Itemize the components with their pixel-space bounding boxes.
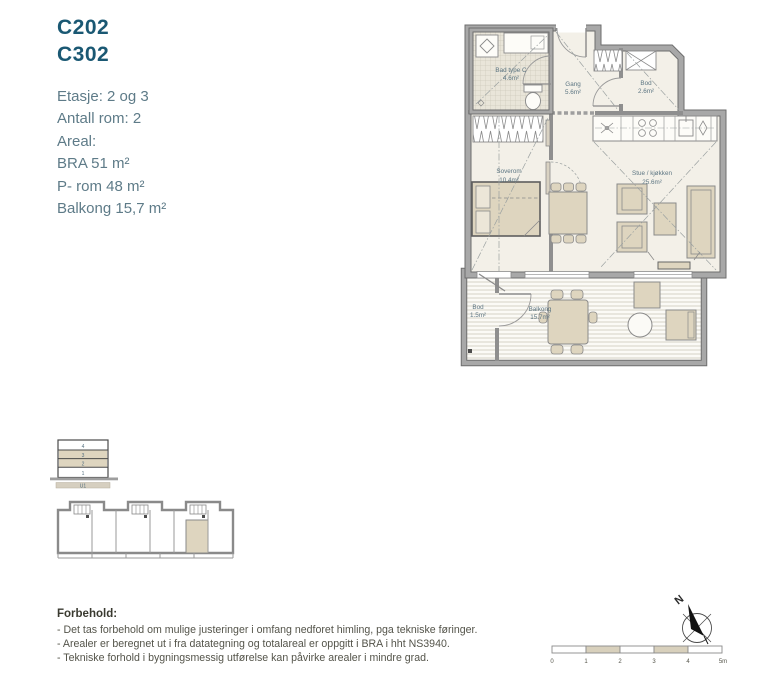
room-label-soverom: Soverom: [496, 168, 521, 175]
sofa: [687, 186, 715, 258]
room-label-bod: Bod: [640, 80, 652, 87]
disclaimer-line: - Arealer er beregnet ut i fra datategni…: [57, 637, 477, 651]
room-label-bathroom: Bad type C: [495, 67, 527, 74]
svg-text:4.6m²: 4.6m²: [503, 75, 519, 82]
detail-etasje: Etasje: 2 og 3: [57, 86, 166, 108]
bedroom-door-leaf: [546, 120, 550, 146]
balcony-drain: [468, 349, 472, 353]
disclaimer: Forbehold: - Det tas forbehold om mulige…: [57, 608, 477, 665]
svg-text:10.4m²: 10.4m²: [499, 177, 519, 184]
room-label-balcony-bod: Bod: [472, 304, 484, 311]
floorplan-page: C202 C302 Etasje: 2 og 3 Antall rom: 2 A…: [0, 0, 768, 679]
svg-text:1.5m²: 1.5m²: [470, 312, 486, 319]
scale-tick: 0: [550, 659, 554, 665]
floor-label-3: 3: [82, 453, 85, 459]
svg-text:2.6m²: 2.6m²: [638, 88, 654, 95]
key-plan: [50, 492, 245, 567]
pillow: [476, 211, 490, 233]
detail-balkong: Balkong 15,7 m²: [57, 198, 166, 220]
floor-label-4: 4: [82, 444, 85, 450]
apartment-details: Etasje: 2 og 3 Antall rom: 2 Areal: BRA …: [57, 86, 166, 220]
highlighted-unit: [186, 520, 208, 553]
room-label-balkong: Balkong: [529, 306, 552, 313]
unit-codes: C202 C302: [57, 14, 109, 68]
disclaimer-heading: Forbehold:: [57, 608, 477, 620]
bed: [472, 182, 540, 236]
bod-unit-box: [626, 51, 656, 70]
unit-code-secondary: C302: [57, 41, 109, 68]
svg-text:25.6m²: 25.6m²: [642, 179, 662, 186]
detail-antall-rom: Antall rom: 2: [57, 108, 166, 130]
pillow: [476, 186, 490, 208]
svg-text:5.6m²: 5.6m²: [565, 89, 581, 96]
basement-label: U1: [80, 483, 87, 489]
dining-table: [549, 183, 587, 243]
coffee-table: [654, 203, 676, 235]
disclaimer-line: - Det tas forbehold om mulige justeringe…: [57, 623, 477, 637]
outdoor-round-table: [628, 313, 652, 337]
svg-text:15.7m²: 15.7m²: [530, 314, 550, 321]
room-label-stue: Stue / kjøkken: [632, 170, 672, 177]
armchair: [617, 222, 647, 252]
washing-machine: [476, 35, 498, 57]
compass-needle: [688, 604, 704, 636]
scale-tick: 4: [686, 659, 690, 665]
scale-tick: 2: [618, 659, 622, 665]
building-section-diagram: 4 3 2 1 U1: [48, 430, 123, 492]
armchair: [617, 184, 647, 214]
scale-tick: 3: [652, 659, 656, 665]
scale-tick: 5m: [719, 659, 727, 665]
disclaimer-line: - Tekniske forhold i bygningsmessig utfø…: [57, 651, 477, 665]
unit-code-primary: C202: [57, 14, 109, 41]
floor-plan: Bad type C 4.6m² Gang 5.6m² Bod 2.6m² So…: [455, 10, 755, 370]
outdoor-chair: [634, 282, 660, 308]
floor-label-2: 2: [82, 462, 85, 468]
north-label: N: [673, 593, 687, 607]
outdoor-lounge-chair: [666, 310, 696, 340]
detail-prom: P- rom 48 m²: [57, 176, 166, 198]
floor-label-1: 1: [82, 471, 85, 477]
ground-line: [50, 478, 118, 481]
toilet: [524, 85, 542, 92]
detail-areal: Areal:: [57, 131, 166, 153]
room-label-gang: Gang: [565, 81, 581, 88]
detail-bra: BRA 51 m²: [57, 153, 166, 175]
scale-bar: 0 1 2 3 4 5m: [543, 638, 735, 668]
kitchen-counter: [593, 116, 717, 141]
scale-tick: 1: [584, 659, 588, 665]
